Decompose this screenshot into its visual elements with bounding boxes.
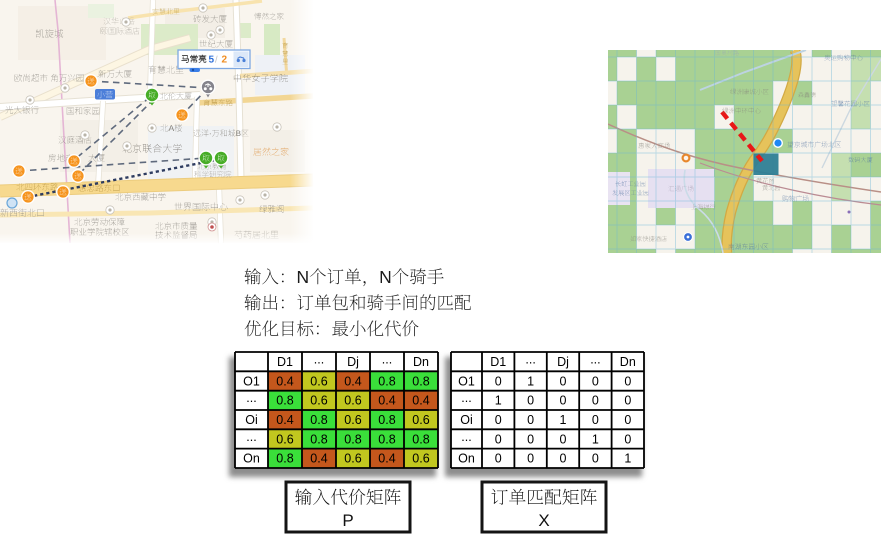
svg-text:0.4: 0.4 xyxy=(412,394,429,408)
svg-text:1: 1 xyxy=(527,374,534,388)
svg-text:0: 0 xyxy=(527,394,534,408)
svg-text:0.4: 0.4 xyxy=(378,394,395,408)
svg-text:X: X xyxy=(538,511,549,530)
svg-text:1: 1 xyxy=(624,452,631,466)
svg-text:0: 0 xyxy=(495,374,502,388)
svg-text:0: 0 xyxy=(592,394,599,408)
svg-text:0.6: 0.6 xyxy=(412,413,429,427)
svg-text:0.8: 0.8 xyxy=(412,432,429,446)
svg-text:0.4: 0.4 xyxy=(276,413,293,427)
svg-text:O1: O1 xyxy=(243,374,260,388)
svg-text:0.4: 0.4 xyxy=(276,374,293,388)
svg-text:...: ... xyxy=(461,430,471,444)
svg-text:0.8: 0.8 xyxy=(344,432,361,446)
svg-text:0: 0 xyxy=(527,452,534,466)
svg-text:0: 0 xyxy=(624,413,631,427)
svg-text:On: On xyxy=(243,452,260,466)
svg-text:0.6: 0.6 xyxy=(310,394,327,408)
svg-text:D1: D1 xyxy=(277,355,293,369)
svg-text:0.8: 0.8 xyxy=(378,374,395,388)
svg-text:0.6: 0.6 xyxy=(344,394,361,408)
svg-text:0: 0 xyxy=(592,374,599,388)
svg-text:0: 0 xyxy=(592,452,599,466)
svg-text:0.6: 0.6 xyxy=(344,413,361,427)
svg-text:1: 1 xyxy=(560,413,567,427)
svg-text:0: 0 xyxy=(592,413,599,427)
svg-text:...: ... xyxy=(525,353,535,367)
svg-text:0.6: 0.6 xyxy=(344,452,361,466)
svg-text:O1: O1 xyxy=(458,374,475,388)
svg-text:Dj: Dj xyxy=(347,355,359,369)
svg-text:0.8: 0.8 xyxy=(378,432,395,446)
svg-text:1: 1 xyxy=(592,432,599,446)
svg-text:...: ... xyxy=(590,353,600,367)
svg-text:Dn: Dn xyxy=(413,355,429,369)
svg-text:0.4: 0.4 xyxy=(344,374,361,388)
svg-text:0.8: 0.8 xyxy=(276,452,293,466)
svg-text:Dj: Dj xyxy=(557,355,569,369)
svg-text:0.8: 0.8 xyxy=(310,432,327,446)
svg-text:0.6: 0.6 xyxy=(276,432,293,446)
svg-text:Oi: Oi xyxy=(460,413,473,427)
svg-text:0: 0 xyxy=(527,413,534,427)
svg-text:0.8: 0.8 xyxy=(378,413,395,427)
svg-text:...: ... xyxy=(246,391,256,405)
svg-text:...: ... xyxy=(461,391,471,405)
svg-text:0.8: 0.8 xyxy=(310,413,327,427)
svg-text:0.6: 0.6 xyxy=(412,452,429,466)
svg-text:0.8: 0.8 xyxy=(276,394,293,408)
svg-text:0.8: 0.8 xyxy=(412,374,429,388)
svg-text:0: 0 xyxy=(624,374,631,388)
svg-text:Oi: Oi xyxy=(245,413,258,427)
svg-text:0: 0 xyxy=(560,452,567,466)
svg-text:Dn: Dn xyxy=(620,355,636,369)
svg-text:On: On xyxy=(458,452,475,466)
svg-text:0: 0 xyxy=(560,394,567,408)
svg-text:0: 0 xyxy=(527,432,534,446)
svg-text:0: 0 xyxy=(624,394,631,408)
svg-text:0: 0 xyxy=(560,374,567,388)
svg-text:D1: D1 xyxy=(490,355,506,369)
svg-text:0: 0 xyxy=(495,452,502,466)
svg-text:P: P xyxy=(342,511,353,530)
svg-text:1: 1 xyxy=(495,394,502,408)
svg-text:0: 0 xyxy=(560,432,567,446)
svg-text:0.4: 0.4 xyxy=(378,452,395,466)
svg-text:...: ... xyxy=(314,353,324,367)
svg-text:0: 0 xyxy=(624,432,631,446)
svg-text:0: 0 xyxy=(495,413,502,427)
svg-text:...: ... xyxy=(382,353,392,367)
svg-text:0: 0 xyxy=(495,432,502,446)
svg-text:...: ... xyxy=(246,430,256,444)
svg-text:0.6: 0.6 xyxy=(310,374,327,388)
svg-text:0.4: 0.4 xyxy=(310,452,327,466)
